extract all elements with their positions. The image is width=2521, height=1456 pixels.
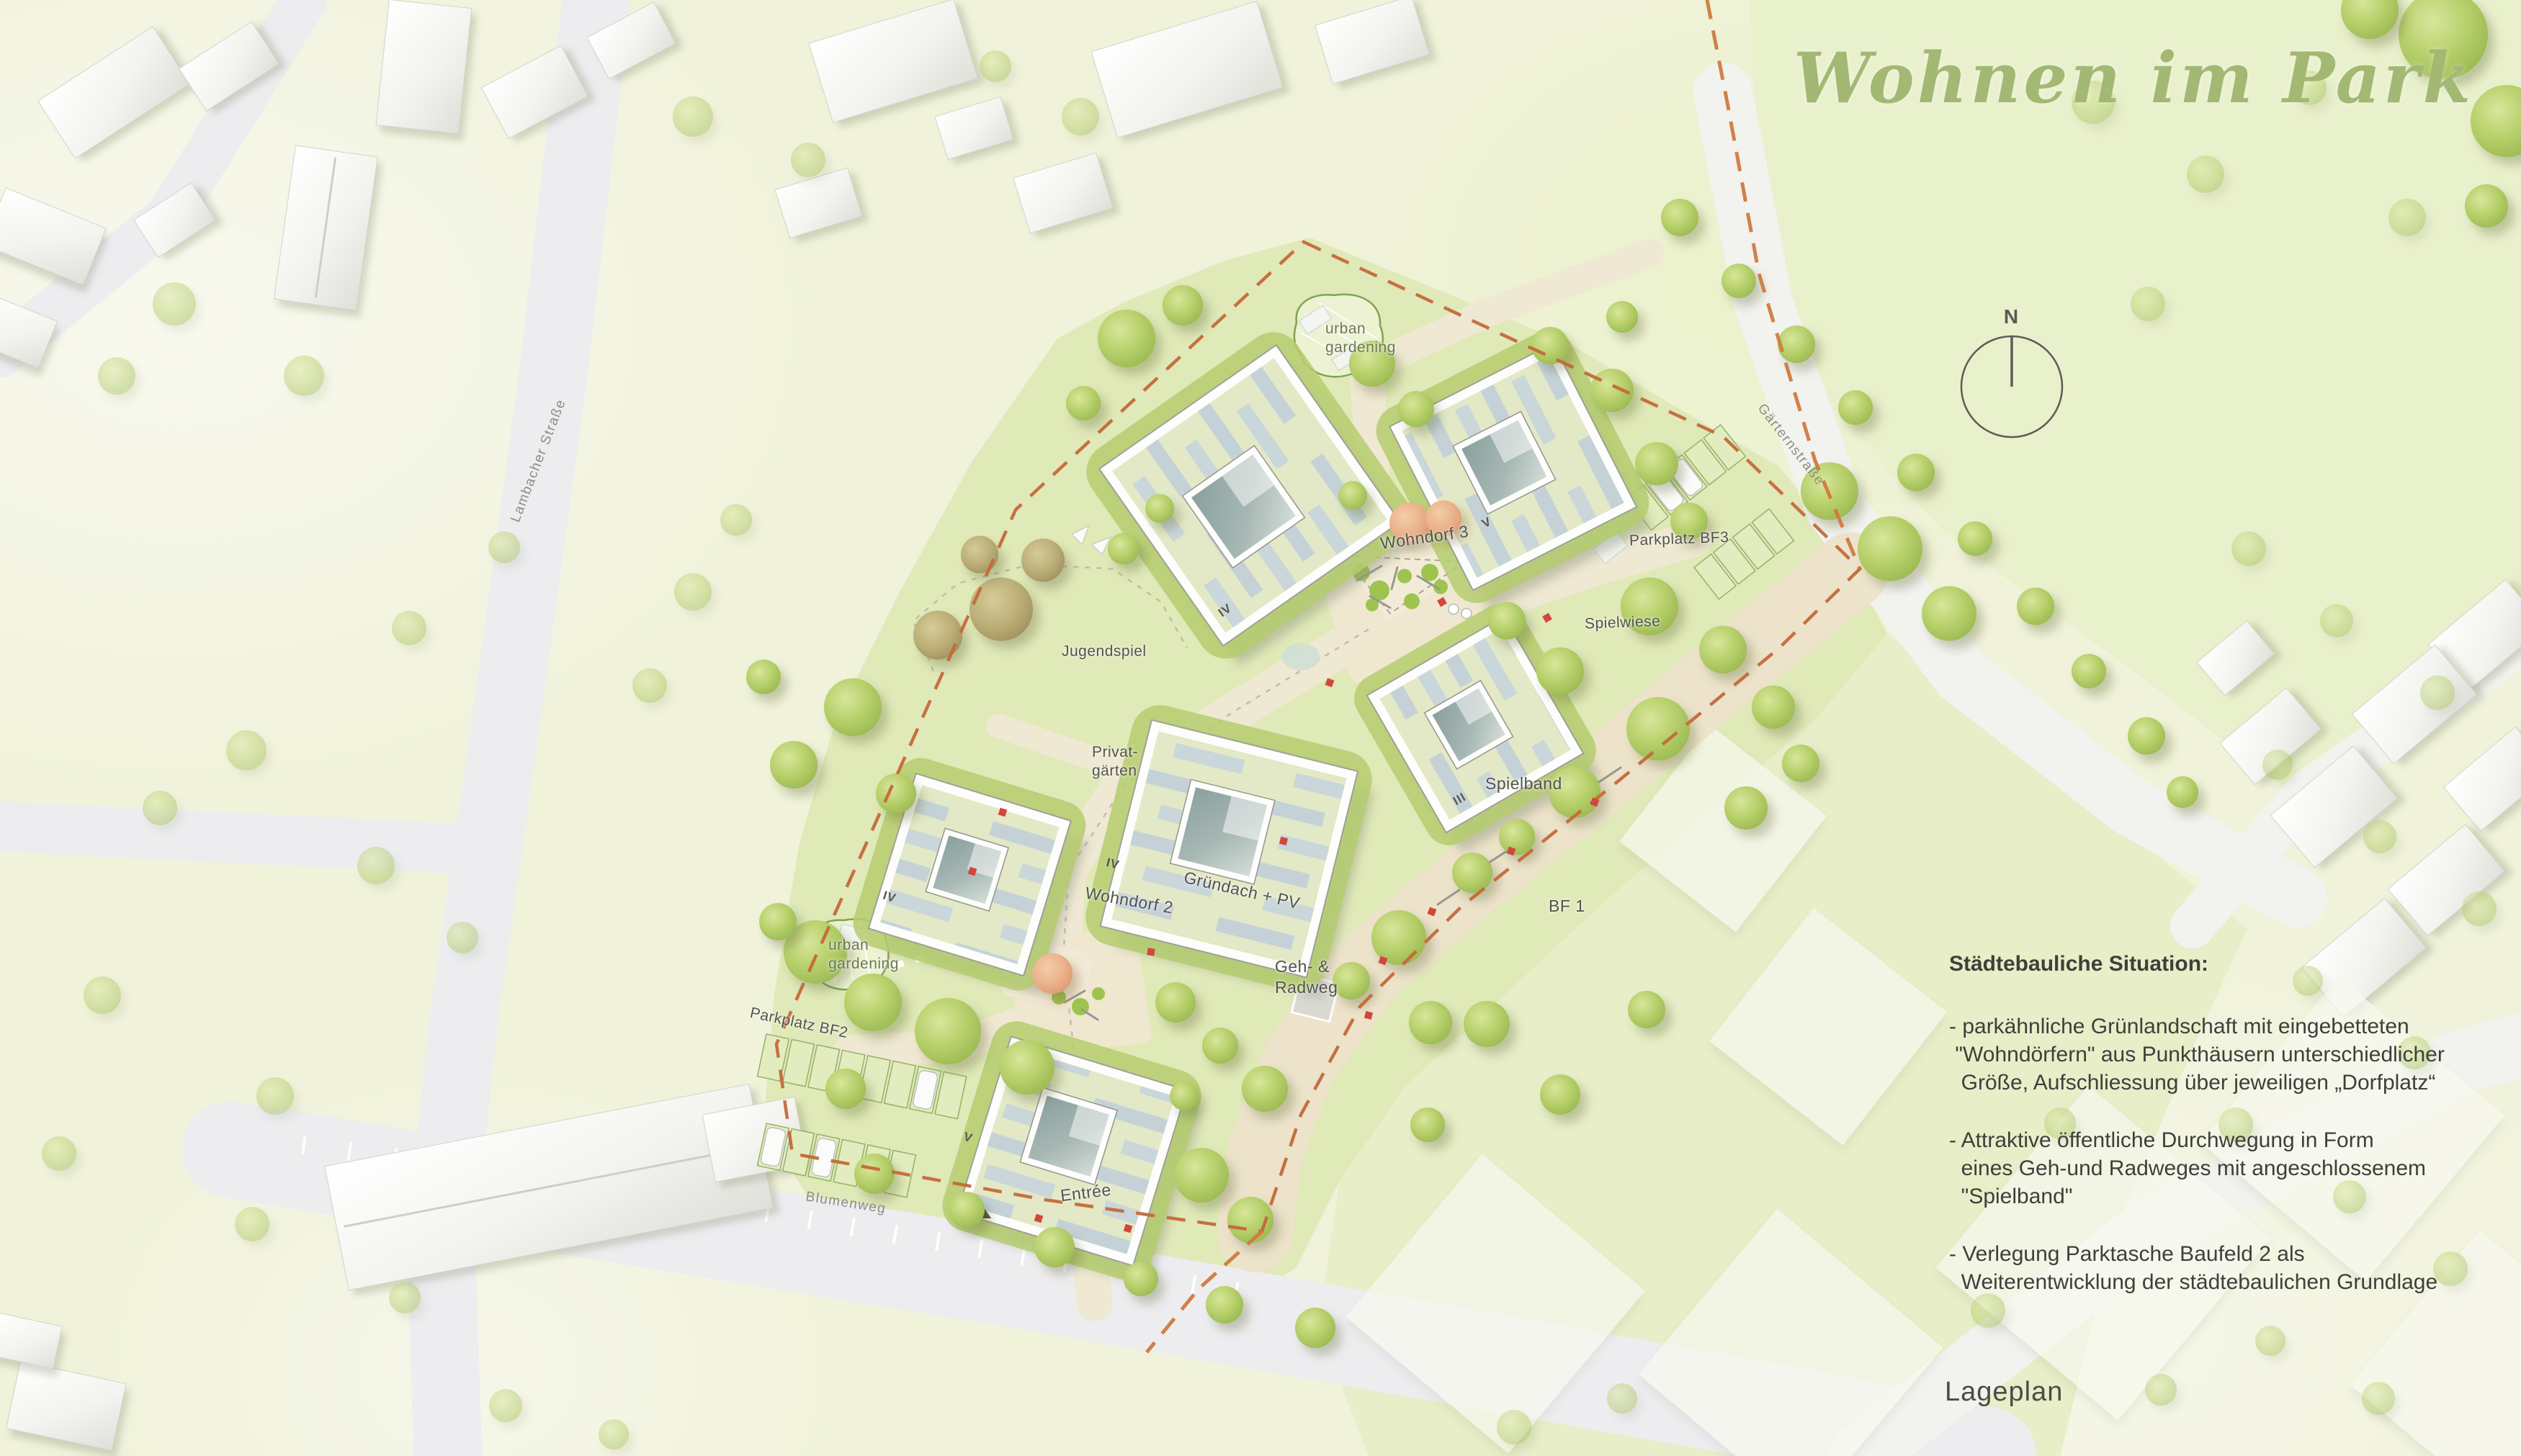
description-block: Städtebauliche Situation: - parkähnliche… [1949, 952, 2511, 1326]
description-bullet-3: - Verlegung Parktasche Baufeld 2 als Wei… [1949, 1240, 2511, 1296]
description-bullet-1: - parkähnliche Grünlandschaft mit eingeb… [1949, 1012, 2511, 1097]
site-plan-page: Wohnen im Park N Wohndorf 3 Wohndorf 2 G… [0, 0, 2521, 1456]
label-urban-gardening-west: urban gardening [828, 936, 899, 974]
plan-title: Wohnen im Park [1794, 37, 2473, 119]
label-jugendspiel: Jugendspiel [1062, 642, 1147, 661]
label-bf1: BF 1 [1549, 896, 1585, 917]
description-heading: Städtebauliche Situation: [1949, 952, 2511, 976]
label-parkplatz-bf3: Parkplatz BF3 [1629, 529, 1729, 551]
label-spielwiese: Spielwiese [1585, 612, 1661, 634]
label-privatgaerten: Privat- gärten [1092, 743, 1138, 781]
description-bullet-2: - Attraktive öffentliche Durchwegung in … [1949, 1126, 2511, 1210]
label-urban-gardening-north: urban gardening [1325, 320, 1396, 358]
label-geh-radweg: Geh- & Radweg [1275, 956, 1338, 998]
compass-north-label: N [2004, 305, 2018, 328]
plan-caption: Lageplan [1945, 1377, 2063, 1408]
label-spielband: Spielband [1485, 773, 1562, 794]
